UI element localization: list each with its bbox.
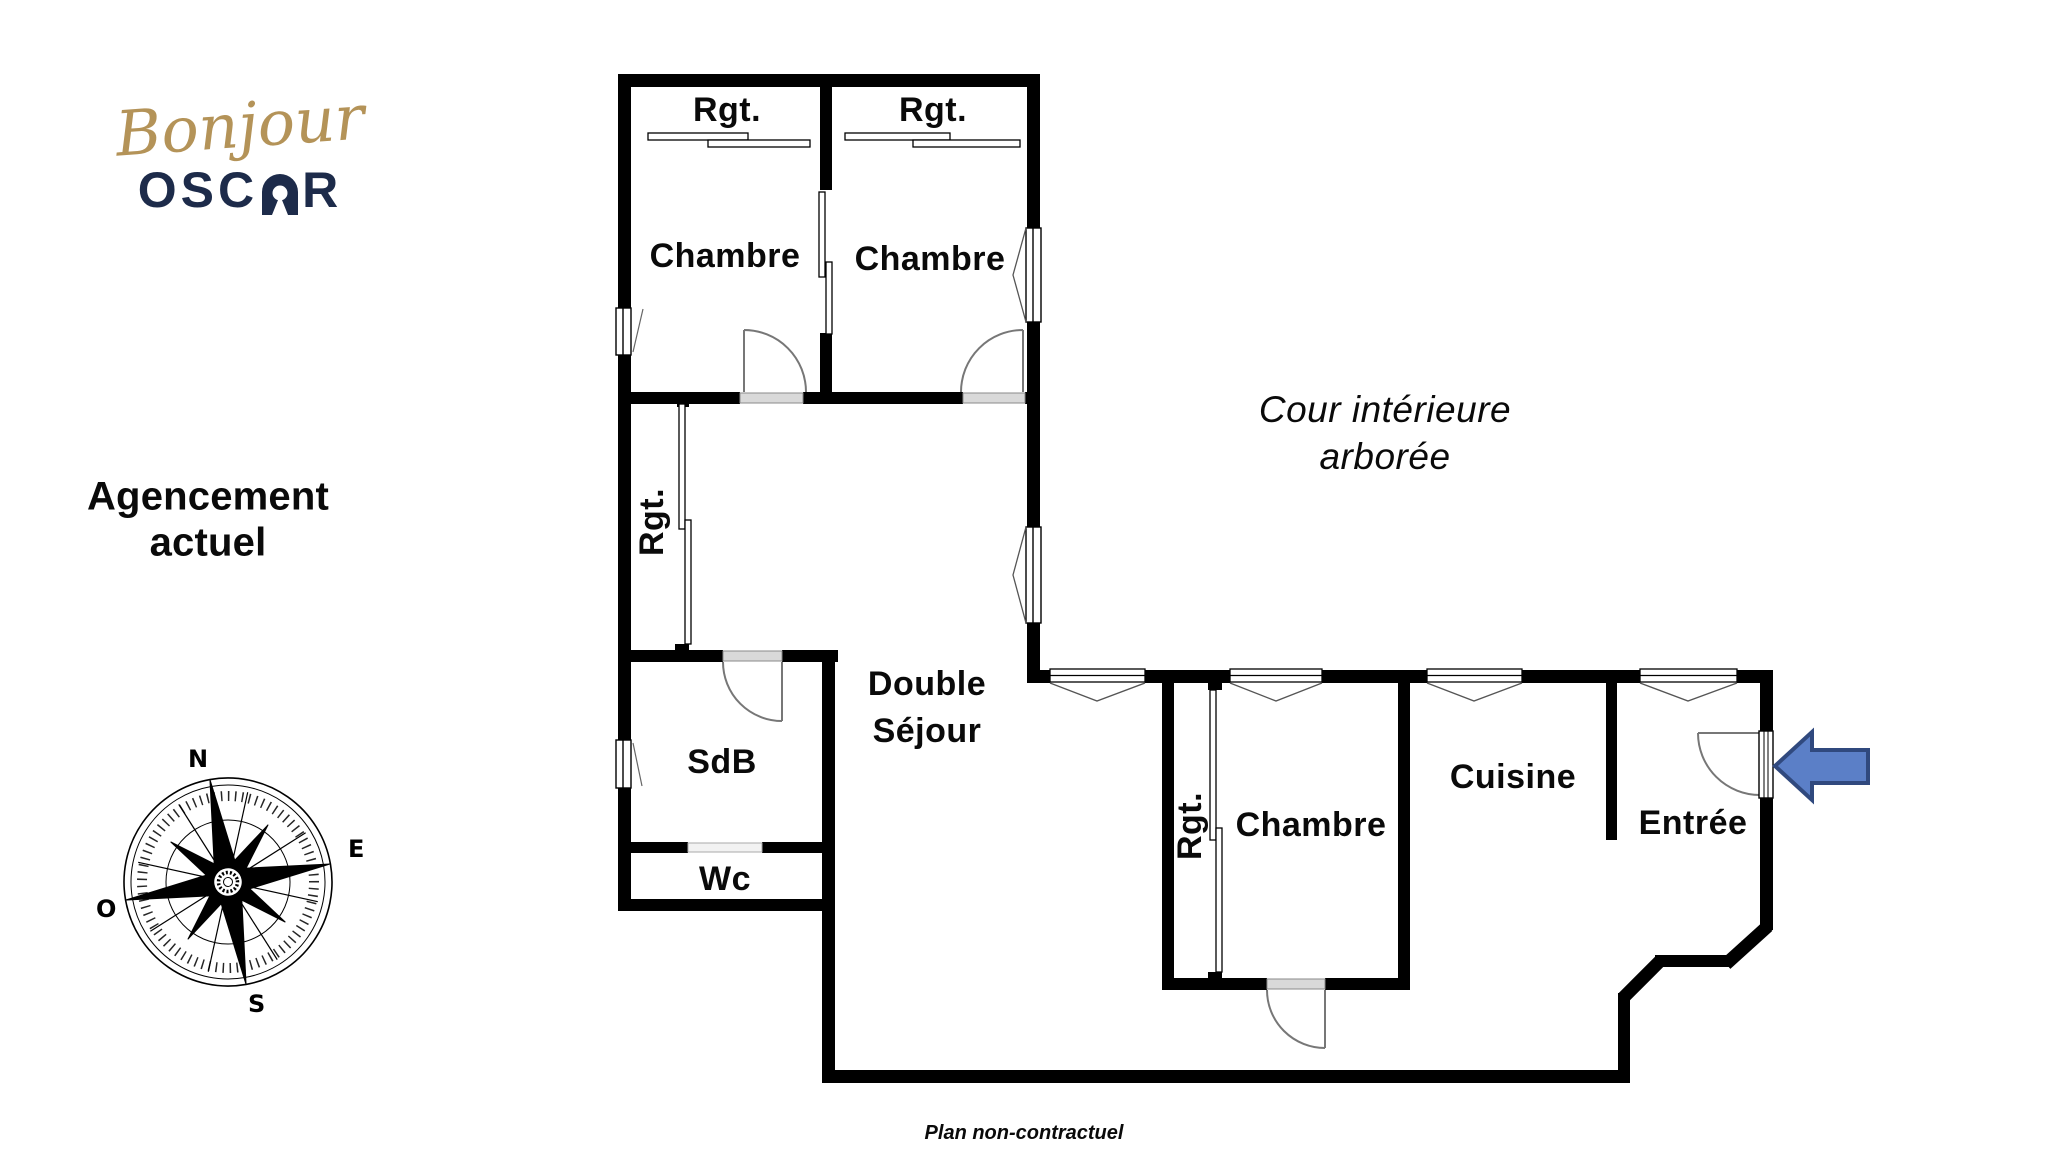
- stub-rgt3-bottom: [1208, 972, 1222, 982]
- sliding-door-rgt1-b: [708, 140, 810, 147]
- sliding-door-corridor-a: [679, 404, 685, 529]
- room-label-chambre-top-right: Chambre: [855, 239, 1006, 279]
- wall-wing-top-a: [1027, 670, 1050, 683]
- window-open-v-wing-4: [1640, 683, 1737, 701]
- stub-rgt3-top: [1208, 678, 1222, 690]
- door-chambre2: [961, 330, 1023, 392]
- wall-chambres-bottom-2: [803, 392, 963, 404]
- wall-right-lower: [1760, 798, 1773, 930]
- room-label-chambre-bottom: Chambre: [1236, 805, 1387, 845]
- wall-left-column-right: [822, 650, 835, 1083]
- wall-wing-top-c: [1322, 670, 1427, 683]
- window-open-v-wing-1: [1050, 683, 1145, 701]
- entrance-door-band: [1759, 731, 1773, 798]
- wall-sdb-wc-1: [628, 842, 688, 853]
- sliding-door-corridor-b: [685, 520, 691, 644]
- keyhole-a-icon: [259, 169, 301, 215]
- wall-step-horizontal: [1655, 955, 1729, 967]
- room-label-wc: Wc: [699, 859, 751, 899]
- room-label-sdb: SdB: [687, 742, 757, 782]
- window-casement-line-2: [633, 743, 642, 786]
- room-label-chambre-top-left: Chambre: [650, 236, 801, 276]
- courtyard-label-line2: arborée: [1319, 435, 1450, 479]
- compass-star: [108, 762, 349, 1003]
- window-open-v-chambre2: [1013, 228, 1026, 322]
- wall-wing-top-d: [1522, 670, 1640, 683]
- sliding-door-rgt3-a: [1210, 690, 1216, 840]
- sliding-door-rgt2-b: [913, 140, 1020, 147]
- threshold-sdb: [723, 651, 782, 661]
- compass-label-east: E: [348, 835, 364, 863]
- wall-sdb-wc-2: [762, 842, 835, 853]
- wall-sdb-top-1: [618, 650, 723, 662]
- compass-label-north: N: [188, 745, 208, 773]
- logo-brand-word: OSC R: [100, 165, 380, 215]
- side-title-line1: Agencement: [87, 473, 329, 520]
- room-label-rgt-top-right: Rgt.: [899, 90, 967, 130]
- door-chambre1: [744, 330, 806, 392]
- threshold-chambre3: [1267, 979, 1325, 989]
- wall-chambre3-bottom-2: [1325, 978, 1410, 990]
- window-open-v-sejour: [1013, 527, 1026, 623]
- sliding-door-rgt1-a: [648, 133, 748, 140]
- wall-cuisine-entree: [1606, 676, 1617, 840]
- wall-chambres-bottom-3: [1025, 392, 1040, 404]
- room-label-entree: Entrée: [1639, 803, 1748, 843]
- wall-top: [618, 74, 1040, 87]
- entrance-arrow-icon: [1775, 732, 1868, 800]
- courtyard-label-line1: Cour intérieure: [1259, 388, 1511, 432]
- wall-right-upper: [1760, 670, 1773, 731]
- room-label-double-sejour-line2: Séjour: [873, 711, 982, 751]
- footer-note: Plan non-contractuel: [925, 1122, 1124, 1146]
- window-casement-line-1: [633, 309, 643, 352]
- logo-script-word: Bonjour: [98, 85, 382, 166]
- sliding-door-chambres-b: [826, 262, 832, 334]
- logo-brand-suffix: R: [302, 165, 342, 215]
- wall-chambre3-right: [1398, 676, 1410, 990]
- threshold-chambre1: [740, 393, 803, 403]
- room-label-rgt-bottom: Rgt.: [1170, 792, 1210, 860]
- room-label-cuisine: Cuisine: [1450, 757, 1576, 797]
- wall-chambre-divider-upper: [820, 87, 832, 190]
- floorplan-page: N E O S Bonjour OSC R Agencement actuel …: [0, 0, 2048, 1153]
- door-entree: [1698, 733, 1760, 795]
- wall-bottom-main: [822, 1070, 1630, 1083]
- logo-brand-prefix: OSC: [138, 165, 258, 215]
- window-open-v-wing-2: [1230, 683, 1322, 701]
- wall-diagonal-lower: [1623, 960, 1661, 998]
- window-open-v-wing-3: [1427, 683, 1522, 701]
- side-title-line2: actuel: [150, 519, 267, 566]
- wall-step-vertical: [1618, 993, 1630, 1077]
- wall-wc-bottom: [618, 899, 835, 911]
- room-label-rgt-corridor: Rgt.: [632, 488, 672, 556]
- compass-label-south: S: [248, 990, 265, 1018]
- door-chambre3: [1267, 990, 1325, 1048]
- compass-label-west: O: [96, 895, 116, 923]
- compass-rose: [100, 720, 360, 1040]
- room-label-rgt-top-left: Rgt.: [693, 90, 761, 130]
- sliding-door-rgt3-b: [1216, 828, 1222, 972]
- stub-corridor-bottom: [675, 644, 689, 656]
- wall-diagonal-upper: [1726, 926, 1768, 964]
- threshold-wc: [688, 843, 762, 852]
- threshold-chambre2: [963, 393, 1025, 403]
- sliding-door-chambres-a: [819, 192, 825, 277]
- entrance-door-frame: [1759, 731, 1773, 798]
- walls: [618, 74, 1773, 1083]
- brand-logo: Bonjour OSC R: [100, 95, 380, 215]
- sliding-door-rgt2-a: [845, 133, 950, 140]
- door-sdb: [723, 662, 782, 721]
- room-label-double-sejour-line1: Double: [868, 664, 986, 704]
